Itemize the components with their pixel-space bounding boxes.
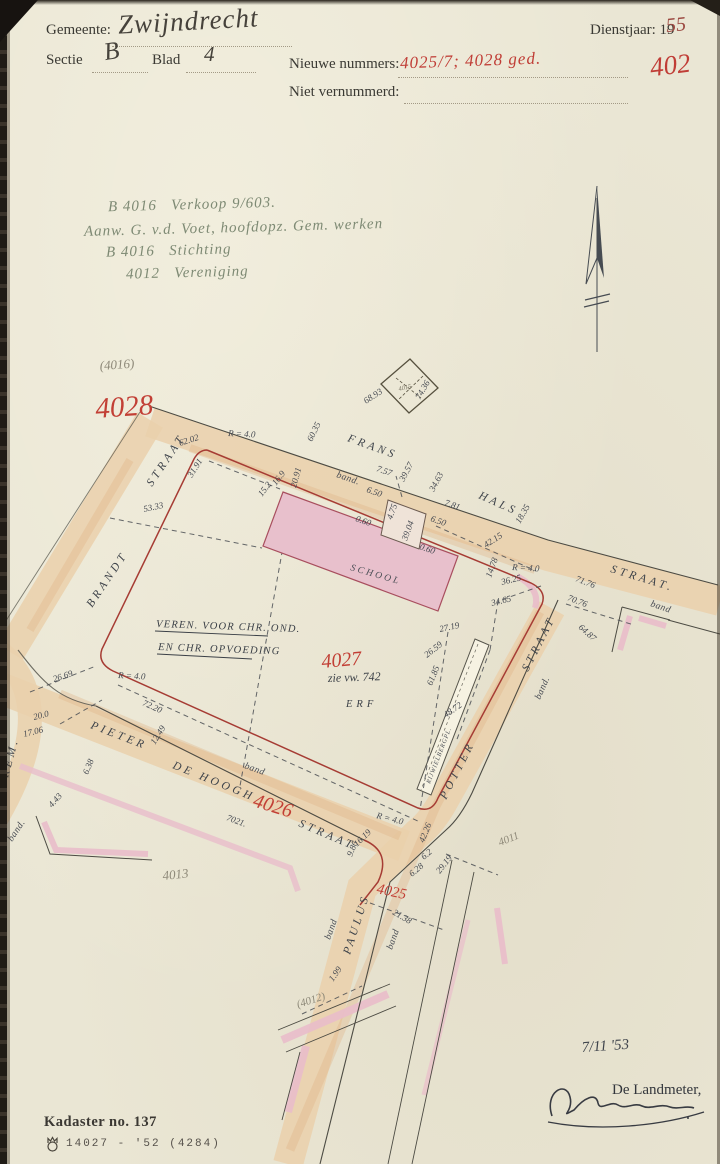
parcel-number-4015: 4015 [398,383,413,393]
measurement-label: 68.93 [362,386,385,406]
north-arrow-icon [584,186,610,352]
band-label: band. [534,675,553,701]
measurement-label: 4.43 [46,791,64,810]
measurement-label: 27.19 [438,620,460,634]
street-name-frans: FRANS [345,432,399,461]
measurement-label: 14.78 [483,556,499,579]
scan-edge-top [0,0,720,5]
street-name-hals: HALS [476,489,520,517]
band-label: band [385,928,402,951]
measurement-label: 26.69 [52,668,75,684]
measurement-label: 74.36 [413,378,432,401]
scan-edge-left [0,0,7,1164]
measurement-label: 34.63 [426,470,445,494]
measurement-label: 39.57 [396,460,415,484]
gemeente-label: Gemeente: [46,22,111,39]
parcel-number-4013: 4013 [162,865,190,883]
surveyor-note-line: 4012 Vereniging [126,263,249,283]
blad-blank-line [186,72,256,73]
niet-vernummerd-blank-line [404,103,628,104]
measurement-label: 36.25 [499,572,523,587]
gemeente-blank-line [112,46,292,47]
measurement-label: 21.38 [391,907,414,926]
radius-label: R = 4.0 [117,670,146,681]
radius-label: R = 4.0 [227,428,256,439]
kadaster-number: Kadaster no. 137 [44,1114,157,1131]
scan-edge-left-shadow [7,0,10,1164]
crown-stamp-icon [44,1136,61,1153]
survey-date: 7/11 '53 [581,1037,630,1056]
parcel-number-4028: 4028 [94,389,155,425]
measurement-label: 60.35 [305,420,323,443]
scan-corner-top-right [690,0,720,16]
scan-corner-top-left [0,0,38,42]
road-parcel-number: 7021. [225,812,247,828]
dienstjaar-value: 55 [665,13,687,38]
dienstjaar-label: Dienstjaar: 19 [590,22,675,39]
nieuwe-nummers-blank-line [398,77,628,78]
radius-label: R = 4.0 [511,562,540,573]
erf-label: ERF [345,699,377,710]
measurement-label: 53.33 [142,500,164,514]
owner-annotation-line1: VEREN. VOOR CHR. OND. [156,619,301,635]
measurement-label: 31.91 [185,457,205,480]
sectie-blank-line [92,72,148,73]
surveyor-note-line: B 4016 Stichting [106,241,232,261]
measurement-label: 72.20 [141,698,164,716]
measurement-label: 70.76 [566,593,589,610]
print-code: 14027 - '52 (4284) [66,1138,221,1150]
parcel-number-4011: 4011 [497,830,521,849]
measurement-label: 64.87 [577,622,599,643]
reference-annotation: zie vw. 742 [327,669,381,685]
sheet-number: 402 [648,48,692,84]
blad-value: 4 [204,42,215,67]
niet-vernummerd-label: Niet vernummerd: [289,84,399,101]
cadastral-map: FRANSHALSSTRAAT.STRAATBRANDTSTRAATPOTTER… [0,0,720,1164]
measurement-label: 7.57 [375,463,394,478]
measurement-label: 34.65 [489,593,513,608]
landmeter-label: De Landmeter, [612,1082,701,1099]
blad-label: Blad [152,52,180,69]
measurement-label: 6.38 [81,757,96,776]
measurement-label: 61.85 [425,664,442,687]
nieuwe-nummers-label: Nieuwe nummers: [289,56,399,73]
parcel-number-4016: (4016) [99,356,135,373]
sectie-label: Sectie [46,52,83,69]
measurement-label: 26.59 [422,639,445,660]
street-name-brandt: BRANDT [85,550,131,610]
